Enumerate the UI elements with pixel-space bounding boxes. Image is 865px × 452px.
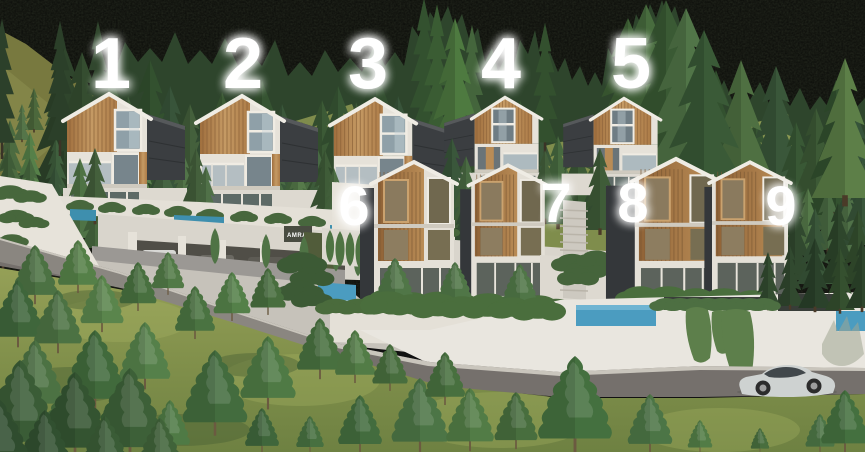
svg-text:6: 6 <box>338 174 369 237</box>
svg-text:1: 1 <box>91 24 131 104</box>
svg-text:5: 5 <box>611 24 651 104</box>
svg-text:8: 8 <box>617 171 648 234</box>
svg-text:2: 2 <box>223 24 263 104</box>
svg-text:3: 3 <box>348 24 388 104</box>
svg-text:7: 7 <box>540 171 571 234</box>
svg-text:9: 9 <box>765 174 796 237</box>
svg-text:4: 4 <box>481 24 521 104</box>
